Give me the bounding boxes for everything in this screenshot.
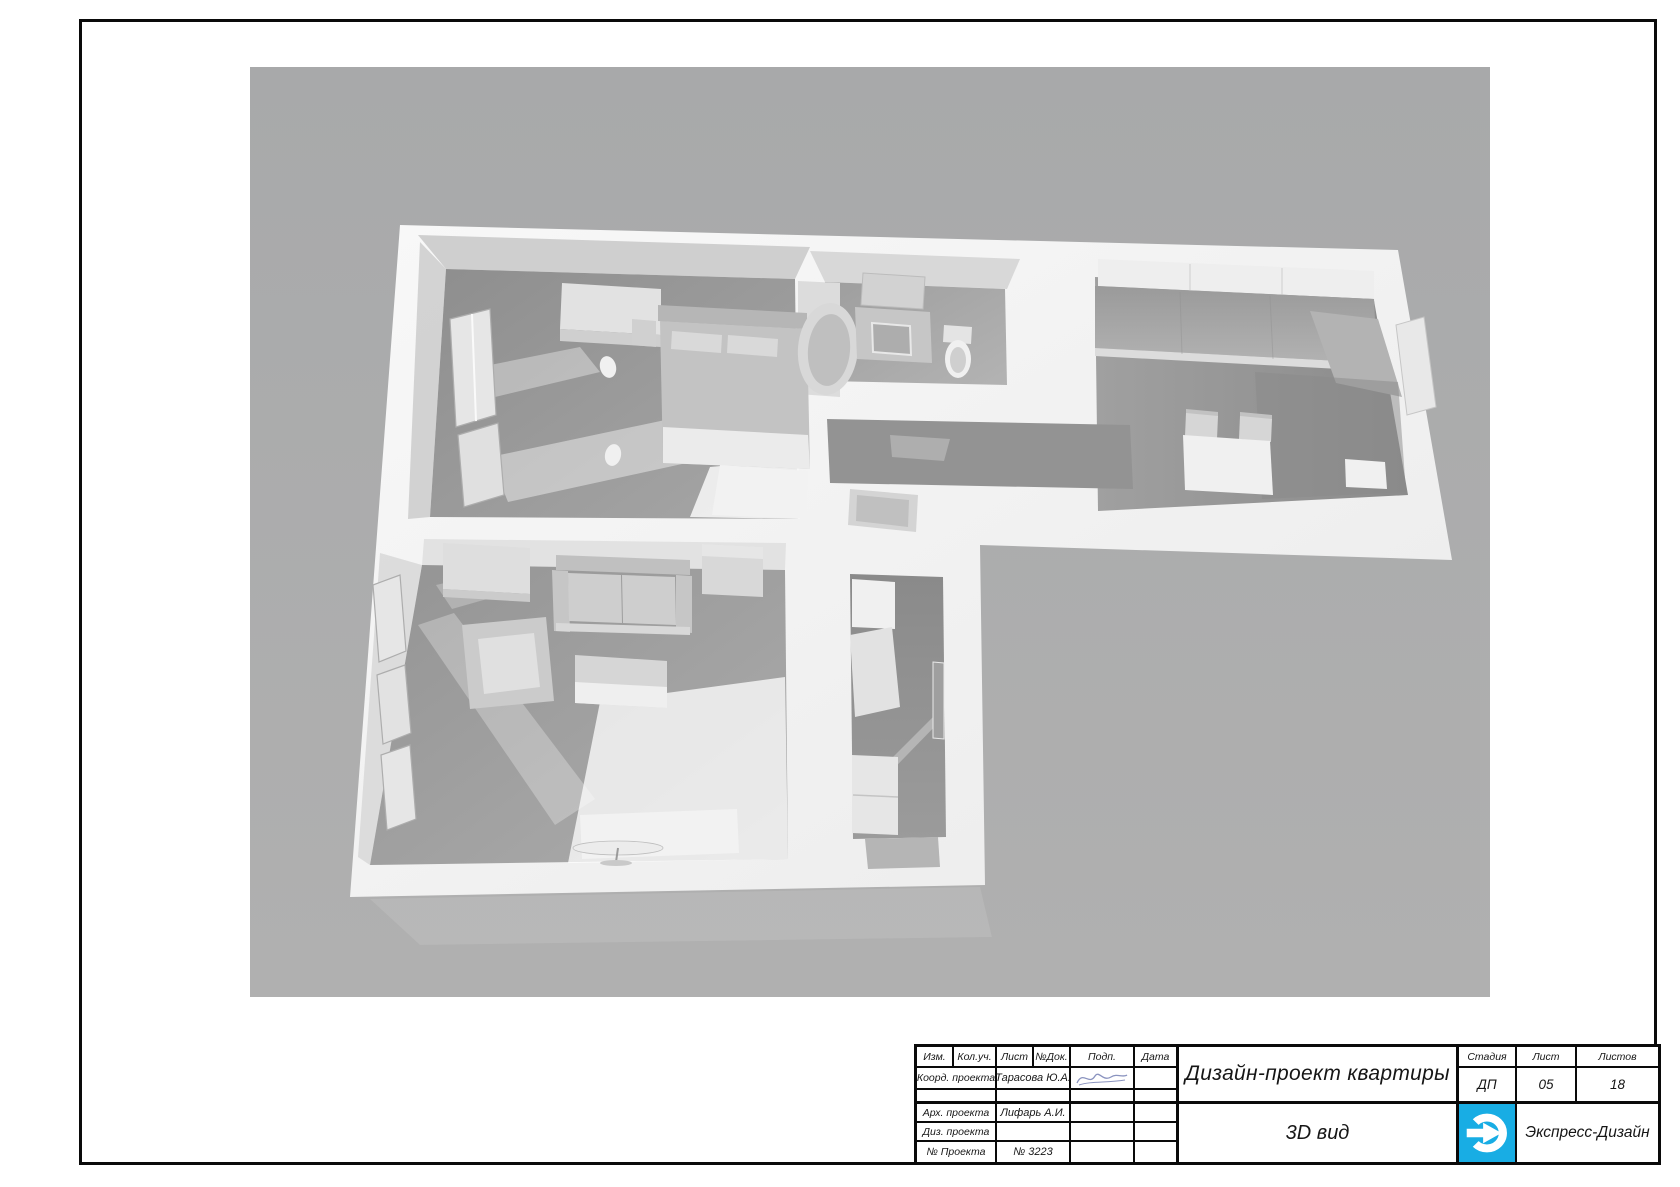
hall-mirror: [933, 662, 944, 739]
header-koluch: Кол.уч.: [954, 1047, 997, 1068]
corridor-door: [848, 489, 918, 532]
chair: [1239, 416, 1272, 442]
hall-box: [850, 627, 900, 717]
express-design-logo-icon: [1459, 1104, 1515, 1162]
living-window: [373, 575, 406, 662]
living-window: [377, 665, 411, 744]
sheets-label: Листов: [1577, 1047, 1658, 1068]
header-ndok: №Док.: [1034, 1047, 1071, 1068]
corridor-floor: [827, 419, 1133, 489]
view-title: 3D вид: [1179, 1104, 1459, 1162]
row-empty-label: [917, 1090, 997, 1104]
header-podp: Подп.: [1071, 1047, 1135, 1068]
sheet-value: 05: [1517, 1068, 1577, 1104]
row-koord-date: [1135, 1068, 1179, 1090]
apartment-render-svg: [250, 67, 1490, 997]
company-logo: [1459, 1104, 1517, 1162]
header-list: Лист: [997, 1047, 1034, 1068]
row-nproekt-label: № Проекта: [917, 1142, 997, 1162]
row-koord-value: Тарасова Ю.А.: [997, 1068, 1071, 1090]
chair: [1185, 413, 1218, 439]
row-arch-label: Арх. проекта: [917, 1104, 997, 1123]
sheets-value: 18: [1577, 1068, 1658, 1104]
sofa-cushion: [622, 575, 676, 625]
bathroom-mirror: [861, 273, 925, 309]
stage-label: Стадия: [1459, 1047, 1517, 1068]
row-diz-label: Диз. проекта: [917, 1123, 997, 1142]
signature: [1071, 1068, 1131, 1090]
sofa-cushion: [568, 573, 622, 623]
header-data: Дата: [1135, 1047, 1179, 1068]
stage-value: ДП: [1459, 1068, 1517, 1104]
bedroom-window: [458, 423, 504, 507]
sofa-arm: [552, 570, 570, 632]
row-empty-date: [1135, 1090, 1179, 1104]
header-izm: Изм.: [917, 1047, 954, 1068]
row-nproekt-value: № 3223: [997, 1142, 1071, 1162]
living-window: [381, 745, 416, 830]
sofa-arm: [676, 575, 692, 633]
living-cabinet: [443, 543, 530, 594]
sheet-label: Лист: [1517, 1047, 1577, 1068]
dining-table: [1183, 435, 1273, 495]
apartment-3d-render: [250, 67, 1490, 997]
hallway-door-threshold: [865, 837, 940, 869]
row-empty-sign: [1071, 1090, 1135, 1104]
sink: [872, 323, 911, 355]
nightstand: [632, 319, 656, 347]
bedroom-dresser: [712, 465, 808, 519]
hall-box: [852, 579, 895, 629]
row-koord-label: Коорд. проекта: [917, 1068, 997, 1090]
signature-cell: [1071, 1068, 1135, 1090]
title-block: Изм. Кол.уч. Лист №Док. Подп. Дата Коорд…: [914, 1044, 1661, 1165]
project-title: Дизайн-проект квартиры: [1179, 1047, 1459, 1104]
drawing-sheet: Изм. Кол.уч. Лист №Док. Подп. Дата Коорд…: [0, 0, 1680, 1187]
row-diz-value: [997, 1123, 1071, 1142]
company-name: Экспресс-Дизайн: [1517, 1104, 1658, 1162]
row-empty-value: [997, 1090, 1071, 1104]
kitchen-cabinet: [1345, 459, 1387, 489]
row-arch-value: Лифарь А.И.: [997, 1104, 1071, 1123]
